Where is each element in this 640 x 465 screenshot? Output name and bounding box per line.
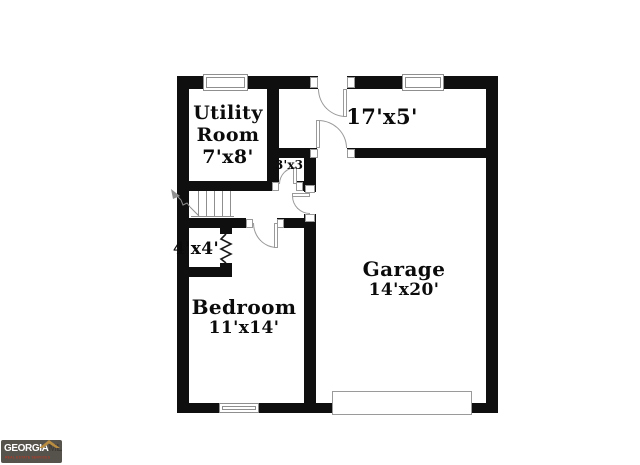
window-pane [206,77,245,88]
room-label-garage: Garage 14'x20' [334,259,474,301]
room-dimensions: 14'x20' [334,280,474,301]
room-dimensions: 17'x5' [332,104,432,129]
stairs-treads [191,191,234,217]
utility-window [203,74,248,91]
door-jamb [310,77,318,88]
door-jamb [310,149,318,158]
door-jamb [305,214,315,222]
wall-segment [347,148,486,158]
garage-vehicle-door [332,391,472,415]
wall-segment [183,218,246,228]
wall-segment [486,76,498,413]
window-pane [222,406,256,410]
room-label-bedroom: Bedroom 11'x14' [174,297,314,339]
room-dimensions: 11'x14' [174,318,314,339]
garage-entry-door-leaf [292,193,310,197]
roof-icon [39,440,60,448]
door-jamb [272,182,279,191]
room-label-small-closet: 3'x3' [261,158,321,172]
wall-segment [220,263,232,277]
room-name-line: Utility [158,102,298,124]
georgia-mls-logo: GEORGIAMLS REAL ESTATE SERVICES [1,440,62,463]
stairs-and-rod-lines [0,0,640,465]
door-jamb [305,185,315,193]
room-dimensions: 4'x4' [166,239,226,259]
room-name: Bedroom [174,297,314,318]
room-label-hallway: 17'x5' [332,104,432,129]
bedroom-window [219,403,259,413]
room-name: Garage [334,259,474,280]
door-jamb [277,219,284,228]
room-dimensions: 3'x3' [261,158,321,172]
hall-door-leaf [316,120,320,148]
window-pane [405,77,441,88]
room-name-line: Room [158,124,298,146]
hallway-window [402,74,444,91]
logo-tagline: REAL ESTATE SERVICES [5,456,50,460]
garage-entry-door-swing-arc [292,196,310,214]
bedroom-door-leaf [274,223,278,248]
door-jamb [347,149,355,158]
front-door-opening [318,76,347,89]
door-jamb [296,182,303,191]
door-jamb [246,219,253,228]
wall-segment [220,218,232,234]
room-label-closet: 4'x4' [166,239,226,259]
door-jamb [347,77,355,88]
wall-segment [183,181,273,191]
floor-plan-canvas: Utility Room 7'x8' 17'x5' 3'x3' 4'x4' Be… [0,0,640,465]
wall-segment [183,267,221,277]
